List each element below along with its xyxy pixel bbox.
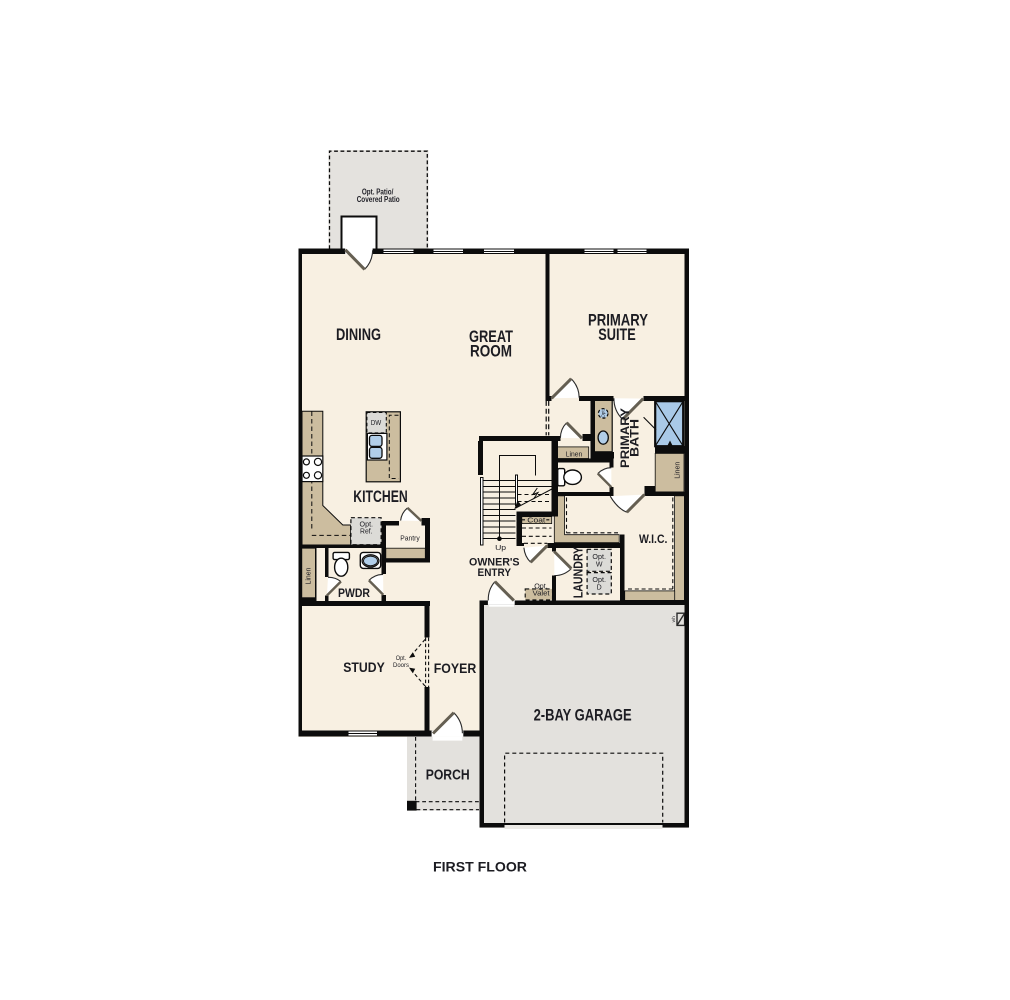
svg-text:BATH: BATH: [628, 419, 642, 457]
svg-text:SUITE: SUITE: [598, 325, 636, 344]
svg-text:ENTRY: ENTRY: [478, 567, 512, 579]
svg-text:Up: Up: [495, 543, 506, 552]
svg-text:ROOM: ROOM: [470, 342, 512, 361]
svg-text:wh: wh: [671, 616, 677, 622]
svg-text:STUDY: STUDY: [343, 660, 385, 675]
svg-text:KITCHEN: KITCHEN: [353, 487, 408, 506]
svg-text:Valet: Valet: [533, 590, 550, 597]
svg-text:Opt.: Opt.: [601, 409, 606, 418]
svg-text:Opt.: Opt.: [360, 521, 374, 528]
svg-text:Linen: Linen: [304, 568, 313, 585]
svg-text:W: W: [596, 562, 603, 569]
svg-text:Coat: Coat: [527, 515, 546, 524]
svg-text:Doors: Doors: [393, 662, 410, 669]
svg-text:FIRST FLOOR: FIRST FLOOR: [433, 860, 527, 875]
svg-text:Linen: Linen: [673, 462, 682, 479]
svg-text:Linen: Linen: [566, 450, 583, 459]
svg-text:LAUNDRY: LAUNDRY: [571, 546, 585, 598]
svg-text:PWDR: PWDR: [338, 588, 371, 600]
svg-text:2-BAY GARAGE: 2-BAY GARAGE: [534, 706, 632, 725]
svg-text:Opt.: Opt.: [534, 583, 548, 590]
svg-text:DINING: DINING: [336, 325, 381, 344]
svg-text:Opt.: Opt.: [592, 554, 606, 561]
svg-text:Covered Patio: Covered Patio: [357, 195, 400, 204]
svg-text:D: D: [597, 585, 602, 592]
svg-text:W.I.C.: W.I.C.: [639, 532, 668, 546]
svg-text:Ref.: Ref.: [360, 528, 373, 535]
svg-text:Pantry: Pantry: [400, 534, 420, 543]
svg-text:FOYER: FOYER: [434, 661, 477, 676]
svg-text:Opt.: Opt.: [592, 577, 606, 584]
svg-text:DW: DW: [371, 420, 382, 427]
svg-text:PORCH: PORCH: [426, 768, 470, 784]
